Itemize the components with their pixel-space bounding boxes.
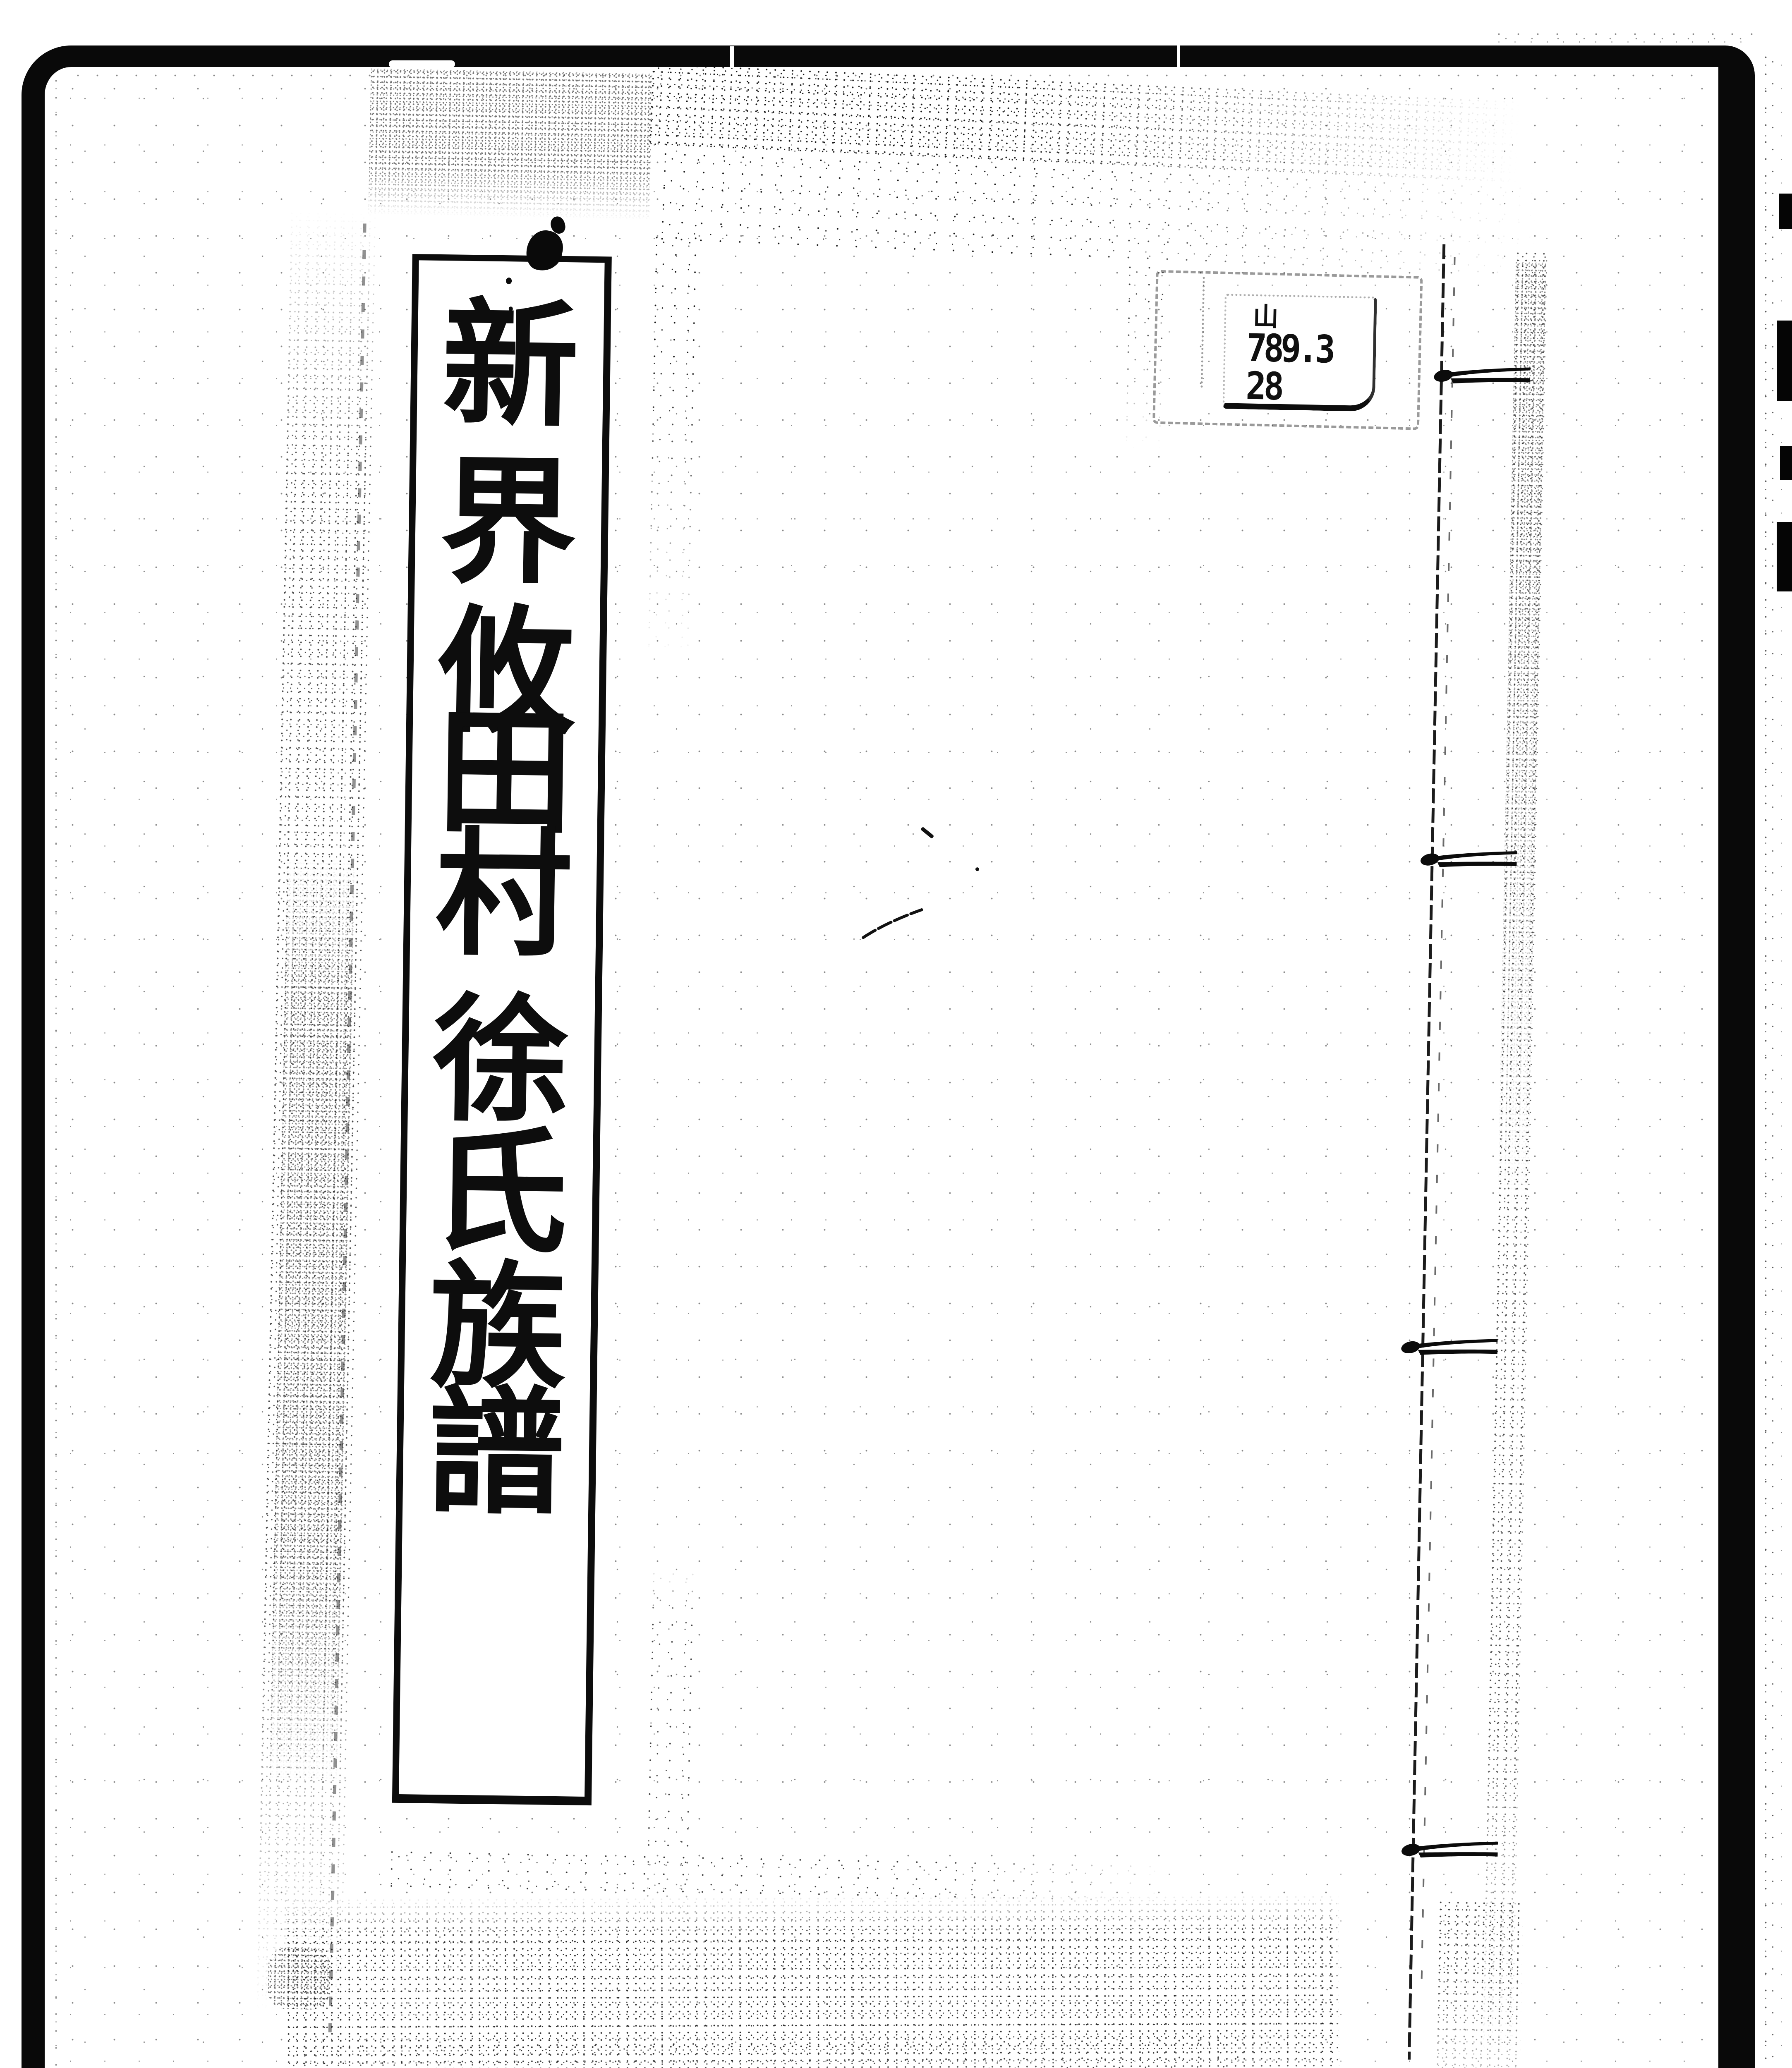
frame-slit xyxy=(1177,45,1180,69)
right-edge-mark xyxy=(1779,194,1792,229)
right-edge-mark xyxy=(1780,446,1792,480)
frame-outer-top-texture xyxy=(1489,26,1754,46)
scanned-document-page: 新 界 攸 田 村 徐 氏 族 譜 山 789.3 28 xyxy=(0,0,1792,2068)
right-edge-mark xyxy=(1777,321,1792,401)
frame-notch xyxy=(389,60,455,68)
right-edge-mark xyxy=(1777,522,1792,591)
frame-slit xyxy=(730,46,734,68)
photo-border-frame xyxy=(22,45,1755,2068)
